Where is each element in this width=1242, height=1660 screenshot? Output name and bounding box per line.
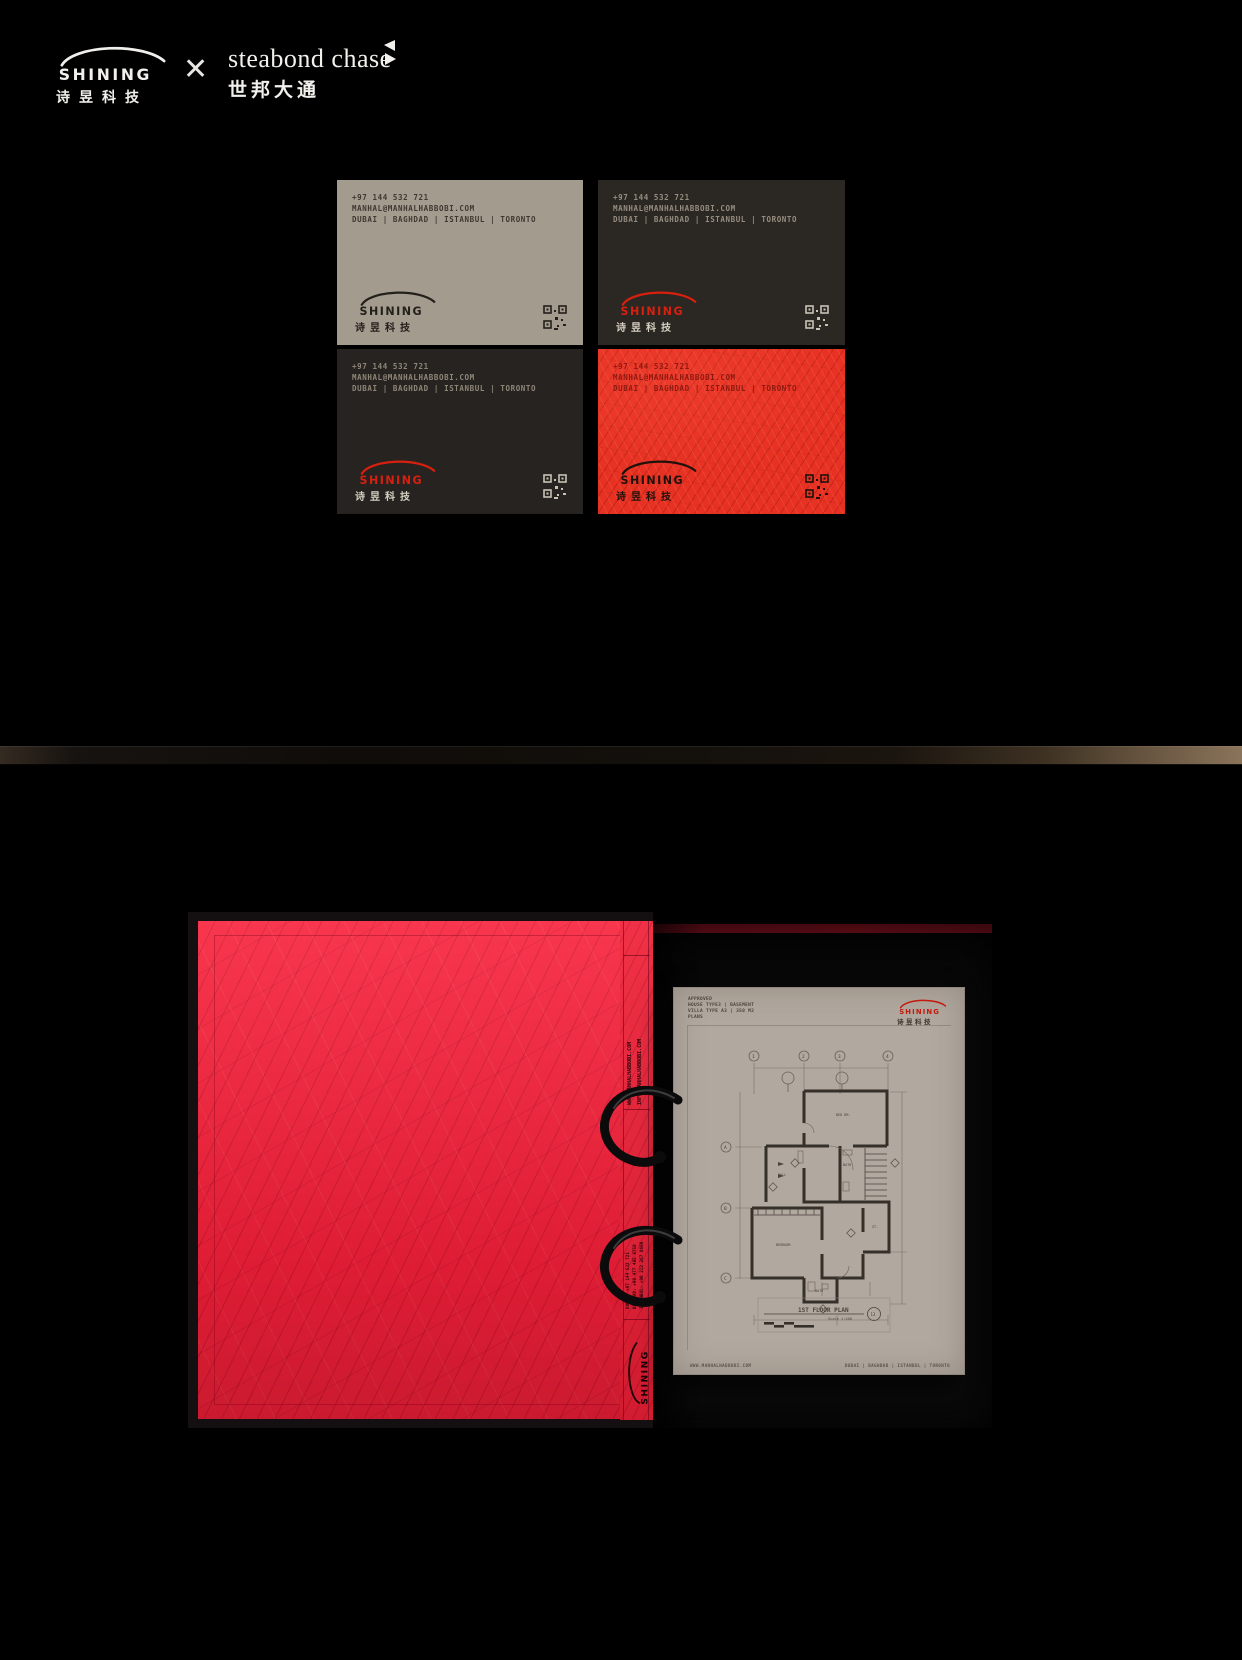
card-email: MANHAL@MANHALHABBOBI.COM: [352, 372, 536, 383]
card-contact-block: +97 144 532 721 MANHAL@MANHALHABBOBI.COM…: [352, 192, 536, 225]
shining-arc-logo-icon: SHINING: [352, 284, 444, 318]
floor-plan-drawing: 1 2 3 4 A B C: [702, 1034, 938, 1340]
card-cities: DUBAI | BAGHDAD | ISTANBUL | TORONTO: [613, 383, 797, 394]
card-contact-block: +97 144 532 721 MANHAL@MANHALHABBOBI.COM…: [613, 361, 797, 394]
document-shining-logo: SHINING 诗昱科技: [895, 995, 951, 1026]
card-phone: +97 144 532 721: [613, 361, 797, 372]
document-header-block: APPROVED HOUSE TYPE3 | BASEMENT VILLA TY…: [688, 997, 754, 1021]
business-card-charcoal-2: +97 144 532 721 MANHAL@MANHALHABBOBI.COM…: [337, 349, 583, 514]
card-phone: +97 144 532 721: [352, 361, 536, 372]
card-contact-block: +97 144 532 721 MANHAL@MANHALHABBOBI.COM…: [613, 192, 797, 225]
table-edge-divider: [0, 746, 1242, 765]
spine-divider: [623, 955, 650, 956]
collab-cross-icon: ✕: [183, 52, 208, 87]
svg-text:BED RM.: BED RM.: [836, 1113, 850, 1117]
logo-chinese-text: 诗昱科技: [355, 488, 444, 503]
svg-text:3: 3: [838, 1054, 841, 1060]
doc-header-line: PLANS: [688, 1015, 754, 1021]
card-contact-block: +97 144 532 721 MANHAL@MANHALHABBOBI.COM…: [352, 361, 536, 394]
shining-logo: SHINING 诗昱科技: [613, 453, 705, 503]
svg-text:C: C: [724, 1276, 727, 1282]
shining-arc-logo-icon: SHINING: [613, 453, 705, 487]
shining-arc-logo-icon: SHINING: [52, 36, 174, 84]
qr-code-icon: [805, 474, 829, 500]
svg-text:BATH: BATH: [843, 1163, 851, 1167]
svg-text:SHINING: SHINING: [641, 1350, 650, 1404]
shining-logo: SHINING 诗昱科技: [613, 284, 705, 334]
partner-chinese-text: 世邦大通: [228, 75, 392, 102]
svg-text:1: 1: [752, 1054, 755, 1060]
card-cities: DUBAI | BAGHDAD | ISTANBUL | TORONTO: [613, 214, 797, 225]
svg-text:SHINING: SHINING: [621, 305, 684, 318]
svg-text:BEDROOM: BEDROOM: [776, 1243, 790, 1247]
svg-text:SHINING: SHINING: [360, 305, 423, 318]
plan-sheet-number: 13: [871, 1312, 876, 1317]
card-email: MANHAL@MANHALHABBOBI.COM: [613, 203, 797, 214]
business-card-charcoal-1: +97 144 532 721 MANHAL@MANHALHABBOBI.COM…: [598, 180, 845, 345]
card-email: MANHAL@MANHALHABBOBI.COM: [613, 372, 797, 383]
plan-title: 1ST FLOOR PLAN: [798, 1307, 849, 1314]
logo-chinese-text: 诗昱科技: [616, 488, 705, 503]
svg-text:HALL: HALL: [778, 1173, 786, 1177]
logo-chinese-text: 诗昱科技: [355, 319, 444, 334]
qr-code-icon: [543, 474, 567, 500]
card-cities: DUBAI | BAGHDAD | ISTANBUL | TORONTO: [352, 214, 536, 225]
card-phone: +97 144 532 721: [613, 192, 797, 203]
shining-arc-logo-icon: SHINING: [895, 995, 951, 1016]
binder-ring-icon: [590, 1224, 702, 1316]
logo-arc: [62, 48, 164, 65]
spine-divider: [623, 1319, 650, 1320]
business-card-red: +97 144 532 721 MANHAL@MANHALHABBOBI.COM…: [598, 349, 845, 514]
shining-arc-logo-icon: SHINING: [613, 284, 705, 318]
partner-name: steabond chase: [228, 44, 392, 74]
shining-logo: SHINING 诗昱科技: [52, 36, 182, 107]
spine-shining-logo: SHINING: [622, 1338, 650, 1408]
document-footer: WWW.MANHALHABBOBI.COM DUBAI | BAGHDAD | …: [690, 1363, 950, 1368]
business-card-gray: +97 144 532 721 MANHAL@MANHALHABBOBI.COM…: [337, 180, 583, 345]
doc-footer-cities: DUBAI | BAGHDAD | ISTANBUL | TORONTO: [845, 1363, 950, 1368]
svg-text:A: A: [724, 1145, 727, 1151]
shining-arc-logo-icon: SHINING: [622, 1338, 650, 1408]
svg-text:2: 2: [802, 1054, 805, 1060]
folder-embossed-frame: [214, 935, 627, 1405]
card-email: MANHAL@MANHALHABBOBI.COM: [352, 203, 536, 214]
logo-chinese-text: 诗昱科技: [56, 87, 182, 107]
plan-scale: Scale 1:100: [828, 1317, 852, 1321]
card-phone: +97 144 532 721: [352, 192, 536, 203]
doc-footer-web: WWW.MANHALHABBOBI.COM: [690, 1363, 751, 1368]
scale-bar: [764, 1322, 814, 1328]
binder-folder: [188, 912, 653, 1428]
qr-code-icon: [805, 305, 829, 331]
partner-arrows-icon: [383, 40, 397, 66]
svg-text:SHINING: SHINING: [621, 474, 684, 487]
svg-text:SHINING: SHINING: [899, 1008, 940, 1016]
shining-logo: SHINING 诗昱科技: [352, 453, 444, 503]
svg-text:B: B: [724, 1206, 727, 1212]
qr-code-icon: [543, 305, 567, 331]
shining-arc-logo-icon: SHINING: [352, 453, 444, 487]
folder-left-cover: [198, 921, 653, 1419]
shining-logo: SHINING 诗昱科技: [352, 284, 444, 334]
logo-chinese-text: 诗昱科技: [616, 319, 705, 334]
svg-text:SHINING: SHINING: [360, 474, 423, 487]
logo-wordmark: SHINING: [59, 65, 152, 84]
svg-text:BATH: BATH: [815, 1289, 823, 1293]
binder-ring-icon: [590, 1084, 702, 1176]
svg-text:4: 4: [886, 1054, 889, 1060]
card-cities: DUBAI | BAGHDAD | ISTANBUL | TORONTO: [352, 383, 536, 394]
floor-plan-document: APPROVED HOUSE TYPE3 | BASEMENT VILLA TY…: [673, 987, 965, 1375]
partner-logo: steabond chase 世邦大通: [228, 44, 392, 102]
svg-text:ST.: ST.: [872, 1225, 878, 1229]
